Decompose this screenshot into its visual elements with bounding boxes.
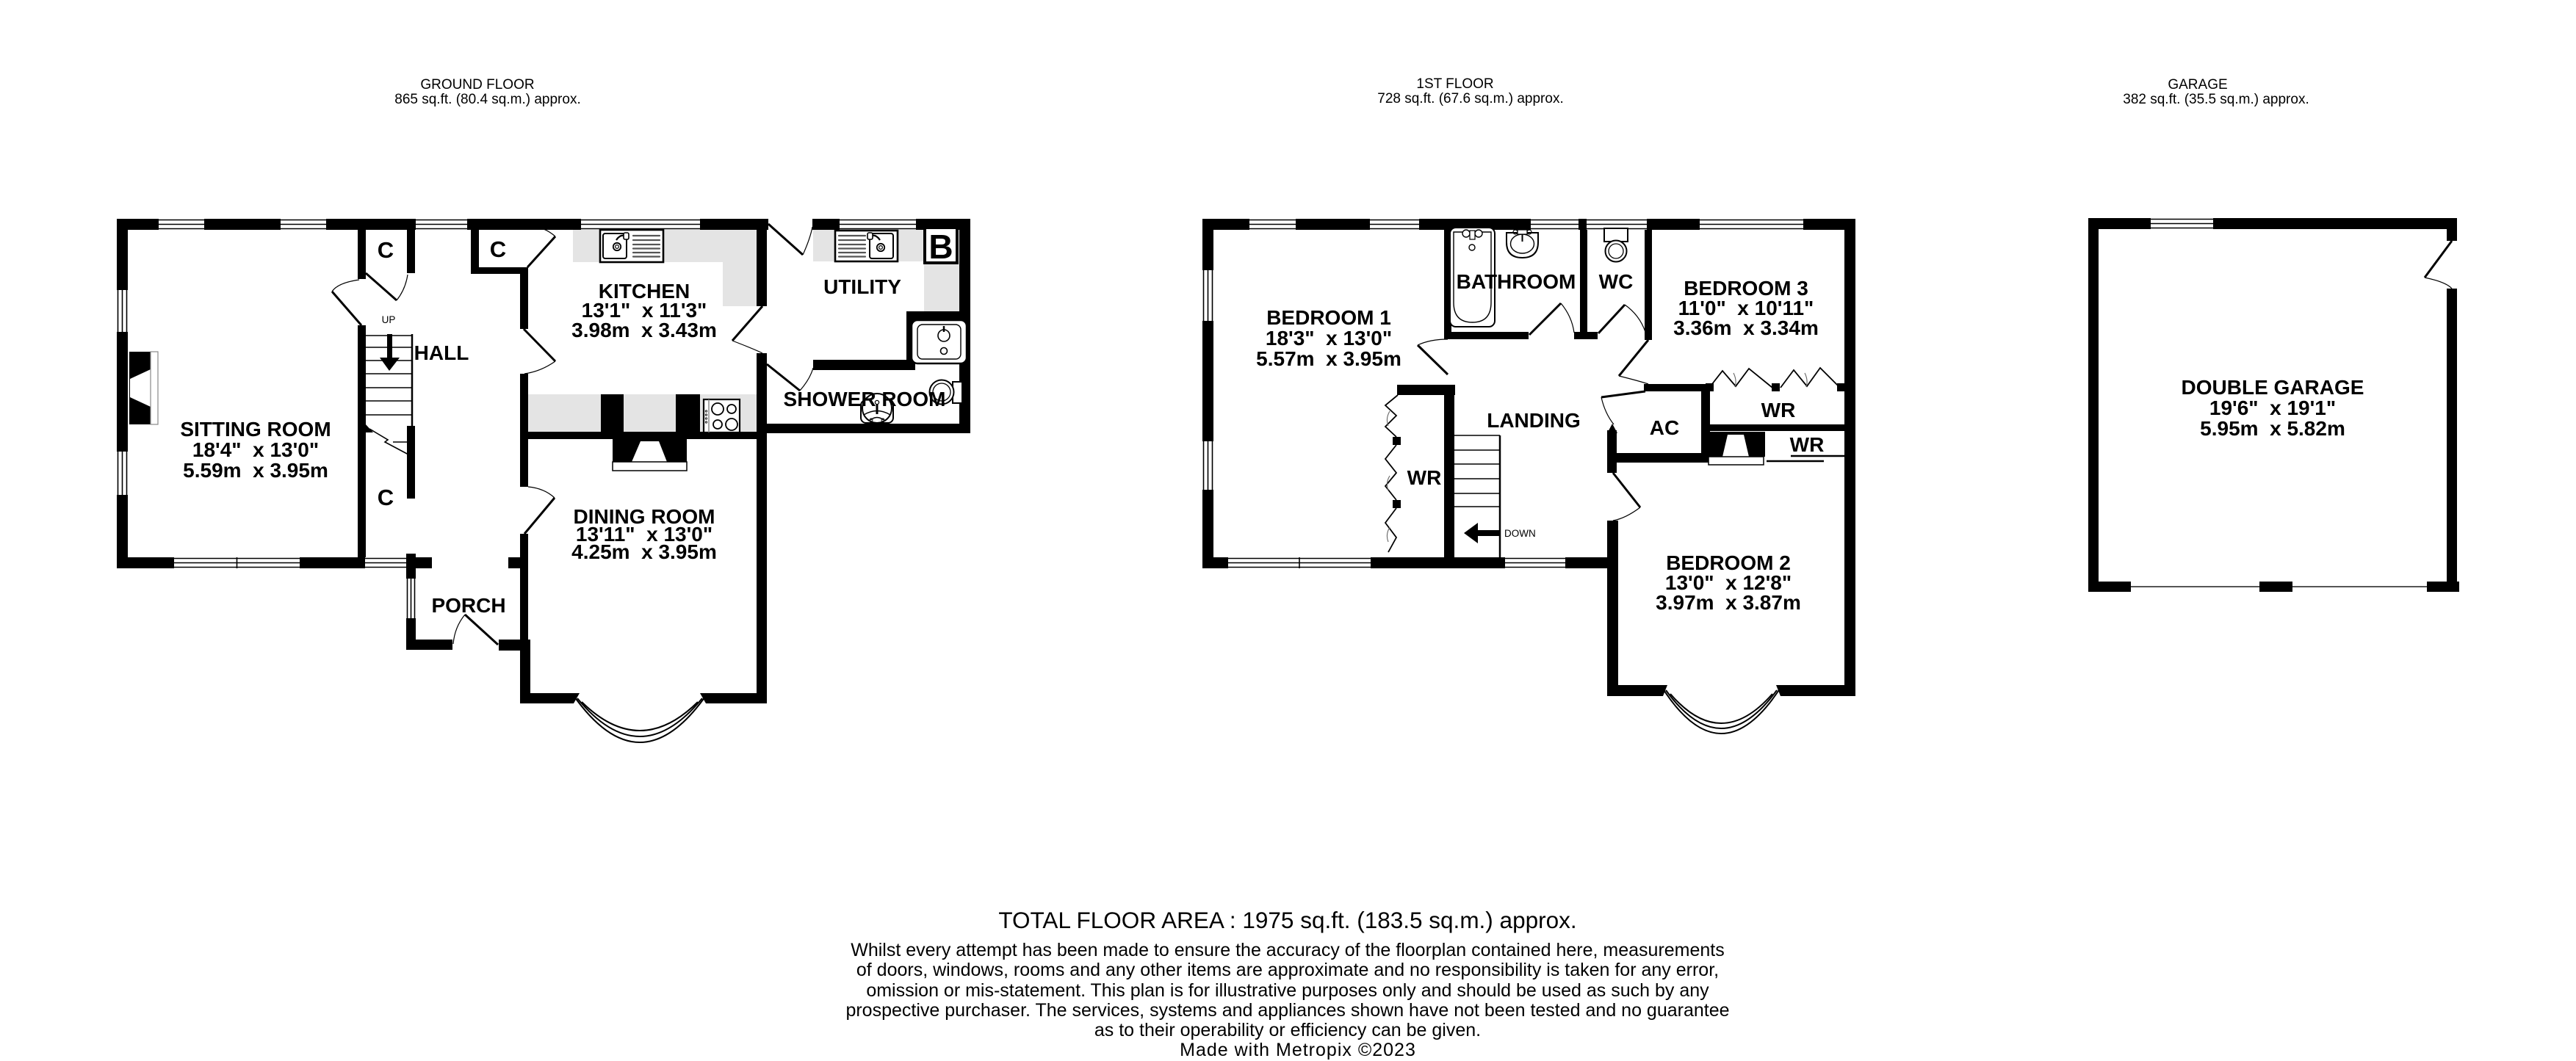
svg-text:omission or mis-statement. Thi: omission or mis-statement. This plan is …: [866, 980, 1709, 1001]
svg-text:as to their operability or eff: as to their operability or efficiency ca…: [1094, 1020, 1481, 1040]
svg-text:UP: UP: [382, 314, 396, 325]
svg-text:UTILITY: UTILITY: [823, 275, 901, 298]
svg-text:SHOWER ROOM: SHOWER ROOM: [784, 388, 946, 410]
svg-text:BATHROOM: BATHROOM: [1457, 270, 1576, 293]
svg-text:C: C: [378, 485, 394, 510]
svg-text:DOWN: DOWN: [1504, 528, 1536, 539]
svg-text:3.97m x 3.87m: 3.97m x 3.87m: [1656, 591, 1801, 614]
svg-text:Made with Metropix ©2023: Made with Metropix ©2023: [1180, 1040, 1416, 1060]
svg-text:4.25m x 3.95m: 4.25m x 3.95m: [571, 540, 717, 563]
svg-text:GARAGE: GARAGE: [2168, 77, 2227, 93]
svg-text:PORCH: PORCH: [431, 594, 505, 617]
svg-text:728 sq.ft. (67.6 sq.m.) approx: 728 sq.ft. (67.6 sq.m.) approx.: [1377, 91, 1563, 106]
svg-text:DOUBLE GARAGE: DOUBLE GARAGE: [2182, 376, 2364, 399]
svg-text:Whilst every attempt has been: Whilst every attempt has been made to en…: [851, 940, 1725, 960]
svg-text:5.59m x 3.95m: 5.59m x 3.95m: [183, 459, 328, 482]
svg-text:5.57m x 3.95m: 5.57m x 3.95m: [1256, 347, 1401, 370]
svg-text:SITTING ROOM: SITTING ROOM: [180, 418, 331, 441]
svg-text:19'6" x 19'1": 19'6" x 19'1": [2209, 396, 2336, 419]
svg-text:3.36m x 3.34m: 3.36m x 3.34m: [1673, 316, 1819, 339]
svg-text:5.95m x 5.82m: 5.95m x 5.82m: [2200, 417, 2345, 440]
svg-text:WC: WC: [1599, 270, 1634, 293]
svg-text:WR: WR: [1407, 466, 1442, 489]
svg-text:LANDING: LANDING: [1487, 409, 1581, 432]
svg-text:1ST FLOOR: 1ST FLOOR: [1416, 76, 1493, 92]
svg-text:3.98m x 3.43m: 3.98m x 3.43m: [571, 319, 717, 341]
svg-text:of doors, windows, rooms and a: of doors, windows, rooms and any other i…: [856, 960, 1719, 980]
svg-text:prospective purchaser. The ser: prospective purchaser. The services, sys…: [845, 1000, 1729, 1021]
svg-text:AC: AC: [1650, 416, 1679, 439]
svg-text:B: B: [928, 228, 953, 266]
svg-text:C: C: [490, 236, 506, 262]
svg-text:C: C: [378, 237, 394, 263]
svg-text:HALL: HALL: [414, 341, 469, 364]
svg-text:TOTAL FLOOR AREA : 1975 sq.ft.: TOTAL FLOOR AREA : 1975 sq.ft. (183.5 sq…: [998, 907, 1576, 933]
svg-text:865 sq.ft. (80.4 sq.m.) approx: 865 sq.ft. (80.4 sq.m.) approx.: [394, 92, 580, 107]
svg-text:18'3" x 13'0": 18'3" x 13'0": [1266, 327, 1392, 350]
svg-text:BEDROOM 1: BEDROOM 1: [1266, 306, 1391, 329]
svg-text:382 sq.ft. (35.5 sq.m.) approx: 382 sq.ft. (35.5 sq.m.) approx.: [2123, 92, 2309, 107]
svg-text:WR: WR: [1790, 433, 1825, 456]
svg-text:18'4" x 13'0": 18'4" x 13'0": [192, 438, 319, 461]
svg-text:WR: WR: [1761, 399, 1796, 421]
svg-text:GROUND FLOOR: GROUND FLOOR: [420, 77, 534, 93]
